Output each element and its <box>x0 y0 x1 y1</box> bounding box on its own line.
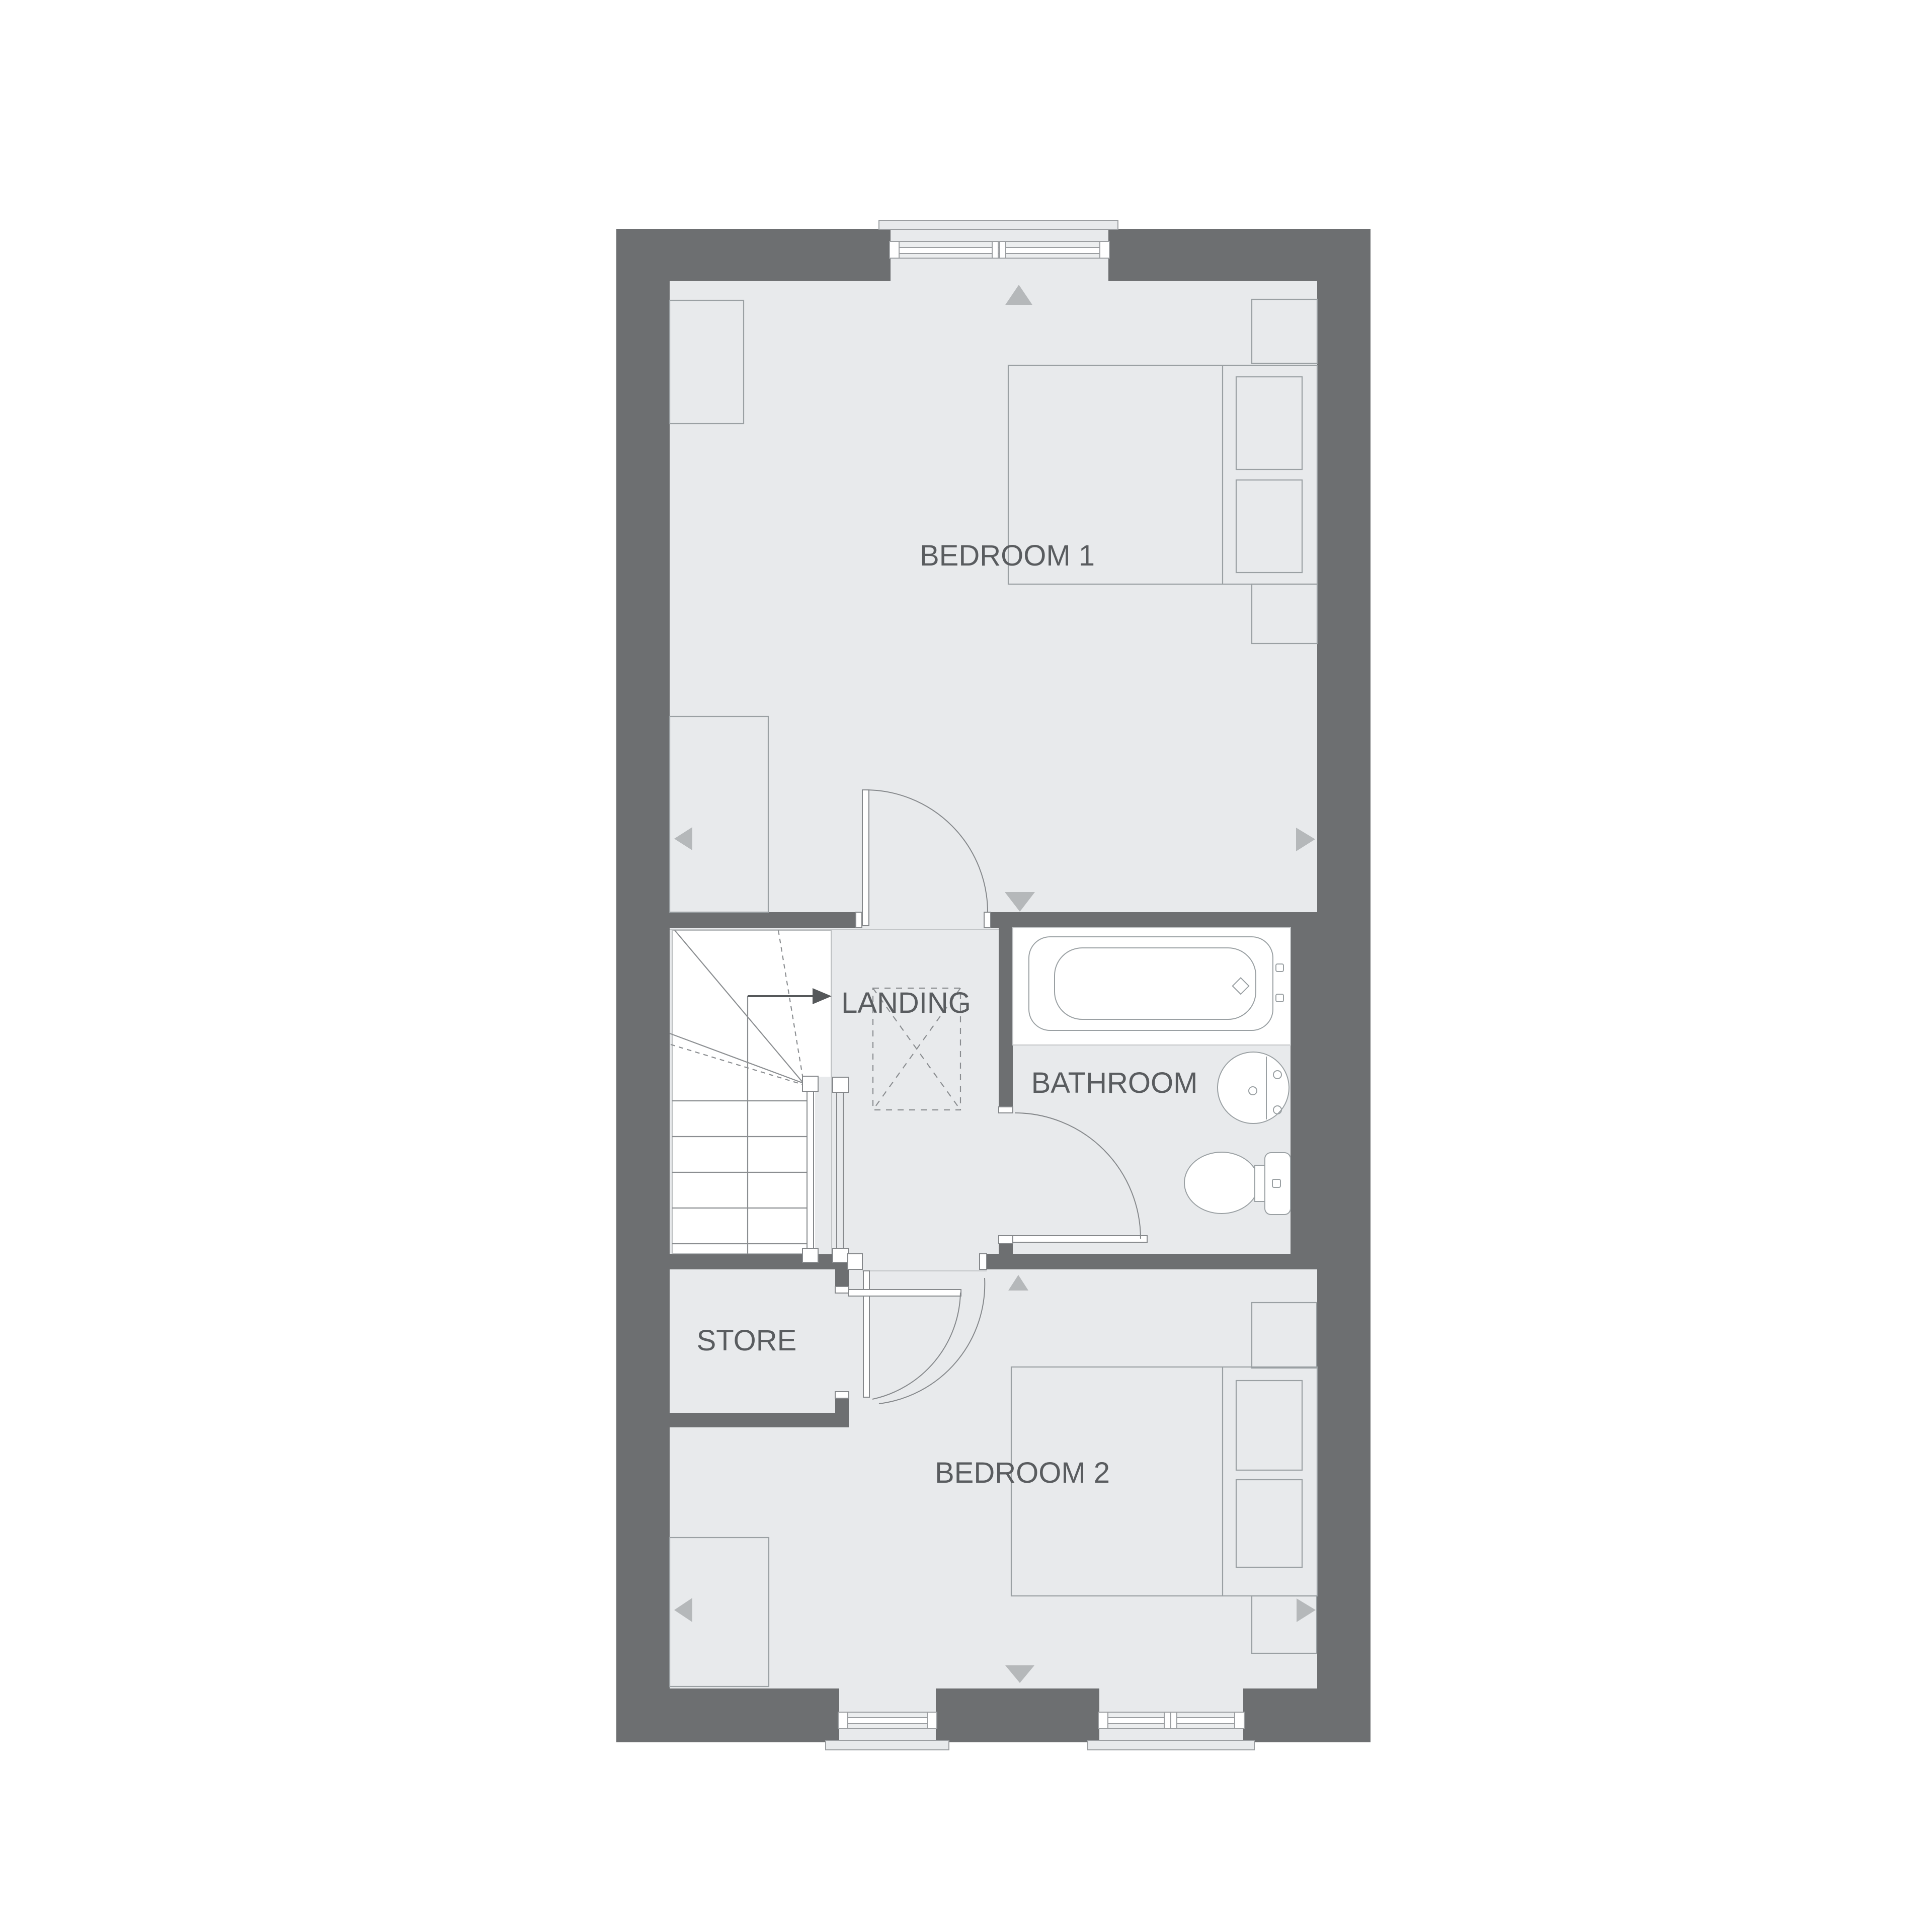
svg-text:BEDROOM 2: BEDROOM 2 <box>935 1457 1110 1489</box>
svg-text:STORE: STORE <box>697 1324 797 1357</box>
svg-text:BEDROOM 1: BEDROOM 1 <box>920 539 1095 572</box>
svg-text:BATHROOM: BATHROOM <box>1031 1067 1198 1099</box>
svg-text:LANDING: LANDING <box>841 987 971 1019</box>
